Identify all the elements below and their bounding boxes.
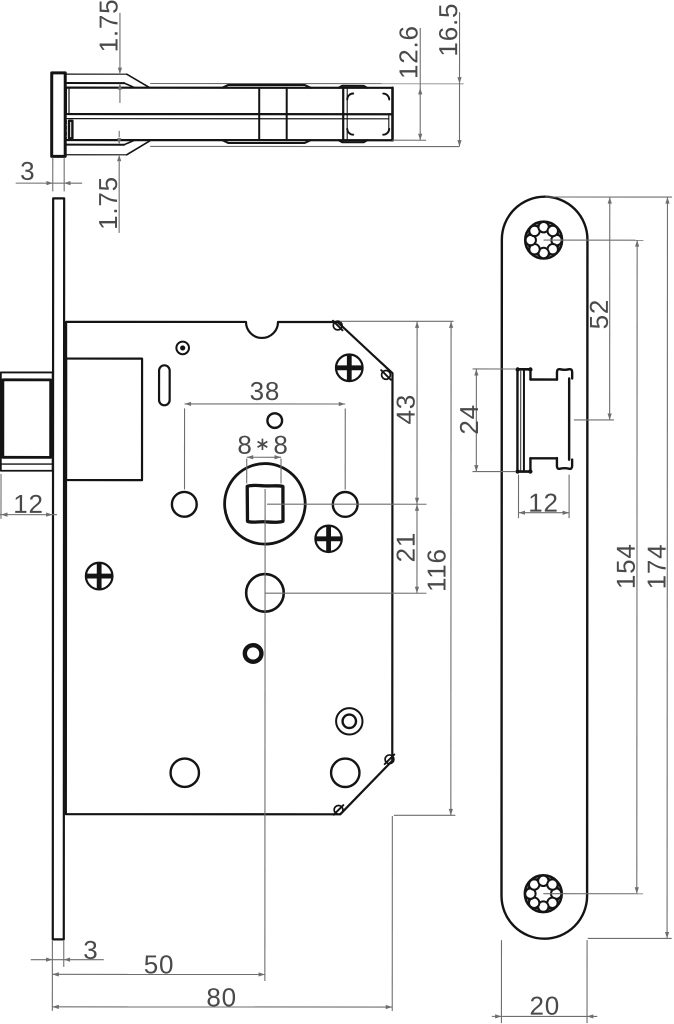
svg-text:12.6: 12.6 <box>393 25 423 79</box>
svg-text:3: 3 <box>20 156 35 186</box>
svg-text:52: 52 <box>584 299 614 330</box>
svg-text:8: 8 <box>273 430 288 460</box>
svg-text:174: 174 <box>642 544 672 590</box>
svg-text:12: 12 <box>528 488 559 518</box>
svg-text:20: 20 <box>530 991 561 1021</box>
svg-text:16.5: 16.5 <box>433 3 463 57</box>
svg-text:8: 8 <box>237 430 252 460</box>
svg-text:80: 80 <box>206 982 237 1012</box>
svg-text:12: 12 <box>13 489 44 519</box>
svg-text:1.75: 1.75 <box>93 176 123 230</box>
svg-text:38: 38 <box>250 376 281 406</box>
svg-text:116: 116 <box>421 548 451 592</box>
svg-text:1.75: 1.75 <box>94 0 124 52</box>
svg-text:3: 3 <box>83 935 98 965</box>
svg-text:154: 154 <box>611 543 641 589</box>
svg-text:21: 21 <box>391 532 421 563</box>
svg-text:24: 24 <box>454 404 484 435</box>
svg-text:50: 50 <box>144 949 175 979</box>
svg-text:43: 43 <box>391 394 421 425</box>
